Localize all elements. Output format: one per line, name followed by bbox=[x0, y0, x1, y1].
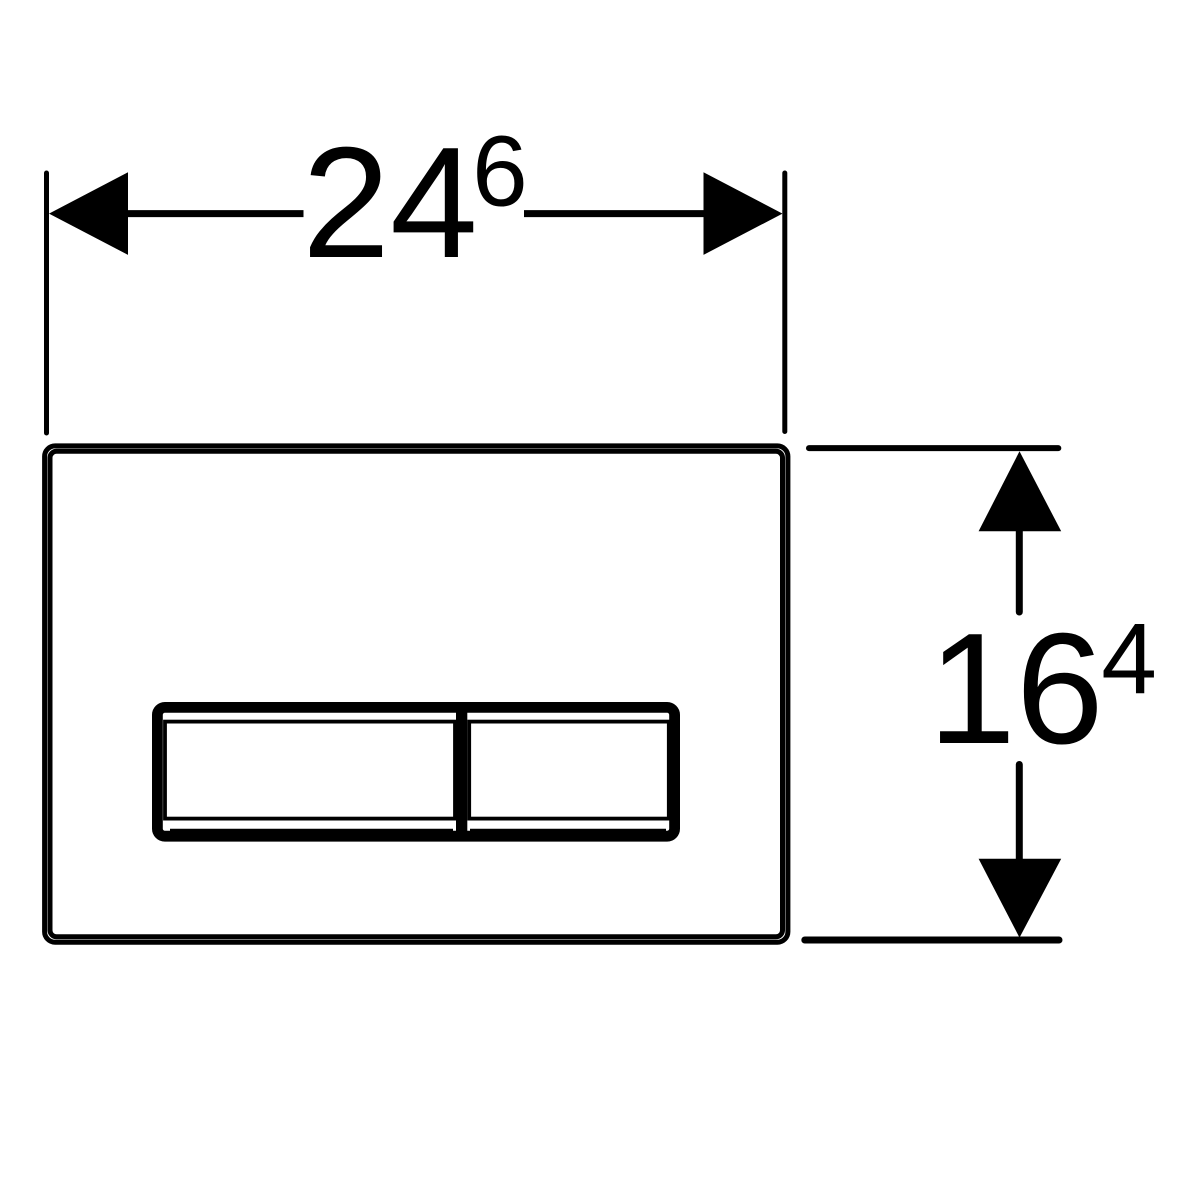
svg-text:4: 4 bbox=[1101, 603, 1157, 715]
svg-text:24: 24 bbox=[302, 115, 478, 291]
svg-text:16: 16 bbox=[928, 601, 1104, 777]
svg-text:6: 6 bbox=[472, 116, 528, 228]
